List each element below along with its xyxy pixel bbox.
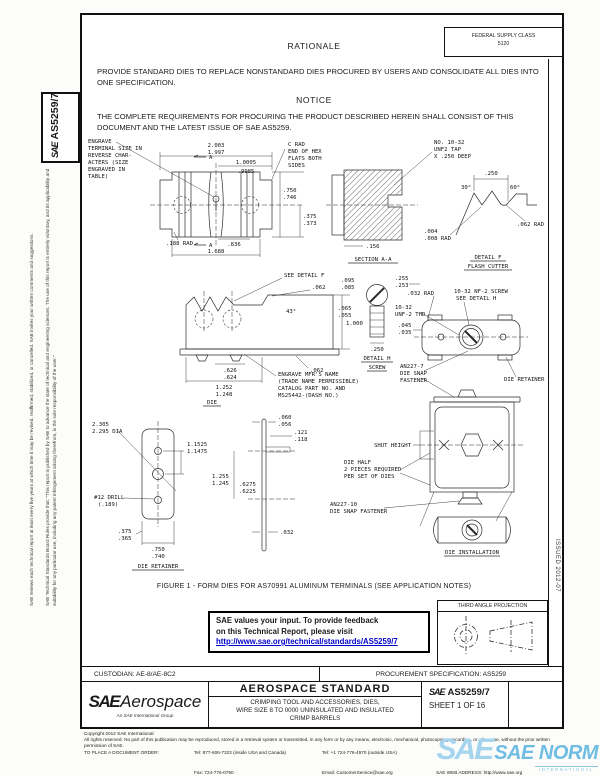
order-label: TO PLACE A DOCUMENT ORDER:	[84, 750, 159, 756]
view-die-front: 2.003 1.997 1.0005 .9985 A A C RAD END O…	[88, 139, 322, 257]
margin-legal-text: SAE Technical Standards Board Rules prov…	[45, 164, 59, 606]
figure-1-drawing: 2.003 1.997 1.0005 .9985 A A C RAD END O…	[82, 135, 546, 583]
dwg-label: SIDES	[288, 163, 305, 169]
view-title: DETAIL H	[364, 356, 391, 362]
dwg-label: 1.0005	[236, 160, 256, 166]
dwg-label: CATALOG PART NO. AND	[278, 386, 346, 392]
dwg-label: 2.295 DIA	[92, 429, 123, 435]
dwg-label: 1.1525	[187, 442, 207, 448]
dwg-label: .035	[398, 330, 411, 336]
revision-cell	[508, 682, 562, 727]
standard-sheet: FEDERAL SUPPLY CLASS 5120 ISSUED 2012-07…	[80, 13, 564, 729]
dwg-label: 2.003	[208, 143, 225, 149]
dwg-label: ENGRAVE MFR'S NAME	[278, 372, 339, 378]
aerospace-wordmark: Aerospace	[120, 692, 201, 711]
projection-title: THIRD ANGLE PROJECTION	[438, 601, 547, 612]
brand-cell: SAEAerospace An SAE International Group	[82, 682, 208, 727]
document-number: AS5259/7	[448, 687, 490, 698]
dwg-label: ACTERS (SIZE	[88, 160, 129, 166]
feedback-box: SAE values your input. To provide feedba…	[208, 611, 430, 653]
dwg-label: .375	[303, 214, 316, 220]
dwg-label: .250	[484, 171, 497, 177]
dwg-label: 10-32	[395, 305, 412, 311]
brand-tagline: An SAE International Group	[117, 713, 174, 718]
dwg-label: 30°	[461, 185, 471, 191]
document-title-line: CRIMP BARRELS	[209, 715, 421, 723]
dwg-label: DIE HALF	[344, 460, 372, 466]
dwg-label: .065	[338, 306, 351, 312]
order-tel2: Tel: +1 724-776-4970 (outside USA)	[322, 750, 397, 756]
doc-number-box: SAE AS5259/7	[41, 92, 80, 163]
dwg-label: .062 RAD	[517, 222, 545, 228]
dwg-label: 1.1475	[187, 449, 207, 455]
view-die-top: .255 .253 .032 RAD 10-32 UNF-2 THD .045 …	[395, 276, 545, 397]
dwg-label: .008 RAD	[424, 236, 452, 242]
dwg-label: .095	[341, 278, 354, 284]
dwg-label: .6225	[239, 489, 256, 495]
dwg-label: TERMINAL SIZE IN	[88, 146, 142, 152]
dwg-label: DIE SNAP	[400, 371, 428, 377]
dwg-label: .6275	[239, 482, 256, 488]
view-title: DIE INSTALLATION	[445, 550, 499, 556]
sae-aerospace-logo: SAEAerospace	[89, 692, 202, 712]
dwg-label: .055	[338, 313, 351, 319]
dwg-label: .746	[283, 195, 296, 201]
dwg-label: #12 DRILL	[94, 495, 125, 501]
dwg-label: .032 RAD	[407, 291, 435, 297]
margin-divider	[548, 59, 549, 667]
view-die-installation: SHUT HEIGHT DIE HALF 2 PIECES REQUIRED P…	[330, 390, 524, 556]
dwg-label: X .250 DEEP	[434, 154, 472, 160]
dwg-label: .255	[395, 276, 408, 282]
title-block: SAEAerospace An SAE International Group …	[82, 681, 562, 727]
dwg-label: SHUT HEIGHT	[374, 443, 412, 449]
dwg-label: .9985	[238, 169, 255, 175]
dwg-label: 1.000	[346, 321, 363, 327]
dwg-label: DIE RETAINER	[504, 377, 545, 383]
doc-number: AS5259/7	[49, 93, 61, 140]
dwg-label: 1.252	[216, 385, 233, 391]
rationale-body: PROVIDE STANDARD DIES TO REPLACE NONSTAN…	[97, 66, 547, 88]
document-title: CRIMPING TOOL AND ACCESSORIES, DIES, WIR…	[209, 697, 421, 727]
document-title-line: WIRE SIZE 8 TO 0000 UNINSULATED AND INSU…	[209, 707, 421, 715]
third-angle-projection-symbol	[438, 612, 547, 660]
procurement-label: PROCUREMENT SPECIFICATION: AS5259	[319, 667, 562, 681]
dwg-label: AN227-7	[400, 364, 424, 370]
dwg-label: 10-32 NF-2 SCREW	[454, 289, 509, 295]
dwg-label: .045	[398, 323, 411, 329]
dwg-label: 1.248	[216, 392, 233, 398]
dwg-label: 2 PIECES REQUIRED	[344, 467, 402, 473]
sheet-number: SHEET 1 OF 16	[429, 701, 508, 710]
sae-logo: SAE	[89, 692, 119, 711]
dwg-label: 43°	[286, 309, 296, 315]
view-title: DETAIL F	[475, 255, 503, 261]
dwg-label: .750	[151, 547, 164, 553]
dwg-label: 1.245	[212, 481, 229, 487]
dwg-label: ENGRAVE	[88, 139, 112, 145]
dwg-label: .121	[294, 430, 307, 436]
view-title: DIE RETAINER	[138, 564, 179, 570]
dwg-label: NO. 10-32	[434, 140, 464, 146]
dwg-label: 1.688	[208, 249, 225, 255]
dwg-label: ENGRAVED IN	[88, 167, 125, 173]
dwg-label: .253	[395, 283, 408, 289]
notice-title: NOTICE	[82, 95, 546, 105]
dwg-label: C RAD	[288, 142, 305, 148]
sae-logo: SAE	[50, 142, 60, 158]
fsc-label: FEDERAL SUPPLY CLASS	[445, 32, 562, 40]
order-fax: Fax: 724-776-0790	[194, 770, 234, 776]
view-section-aa: .156 NO. 10-32 UNF2 TAP X .250 DEEP SECT…	[326, 140, 472, 263]
margin-review-text: SAE reviews each technical report at lea…	[29, 164, 36, 606]
dwg-label: .626	[223, 368, 236, 374]
dwg-label: REVERSE CHAR-	[88, 153, 132, 159]
view-title: SCREW	[369, 365, 386, 371]
dwg-label: .004	[424, 229, 438, 235]
dwg-label: .365	[118, 536, 131, 542]
dwg-label: (.189)	[98, 502, 118, 508]
dwg-label: 60°	[510, 185, 520, 191]
dwg-label: .750	[283, 188, 296, 194]
dwg-label: DIE SNAP FASTENER	[330, 509, 388, 515]
figure-caption: FIGURE 1 - FORM DIES FOR AS70991 ALUMINU…	[82, 583, 546, 590]
watermark-subtext: INTERNATIONAL	[535, 766, 598, 772]
dwg-label: SEE DETAIL F	[284, 273, 325, 279]
dwg-label: 2.305	[92, 422, 109, 428]
view-retainer-section: .060 .056 .121 .118 1.255 1.245 .6275 .6…	[212, 415, 308, 551]
dwg-label: .250	[370, 347, 383, 353]
dwg-label: AN227-10	[330, 502, 357, 508]
order-email: Email: CustomerService@sae.org	[322, 770, 393, 776]
dwg-label: .375	[118, 529, 131, 535]
custodian-label: CUSTODIAN: AE-8/AE-8C2	[82, 671, 319, 678]
dwg-label: .373	[303, 221, 316, 227]
view-die-half: SEE DETAIL F .062 43° 1.000 .062 .626 .6…	[180, 273, 363, 406]
dwg-label: .060	[278, 415, 291, 421]
document-title-line: CRIMPING TOOL AND ACCESSORIES, DIES,	[209, 699, 421, 707]
custodian-row: CUSTODIAN: AE-8/AE-8C2 PROCUREMENT SPECI…	[82, 666, 562, 681]
view-title: SECTION A-A	[354, 257, 392, 263]
dwg-label: .624	[223, 375, 237, 381]
dwg-label: PER SET OF DIES	[344, 474, 395, 480]
dwg-label: .056	[278, 422, 291, 428]
order-tel1: Tel: 877-606-7323 (inside USA and Canada…	[194, 750, 286, 756]
dwg-label: SEE DETAIL H	[456, 296, 496, 302]
watermark-norm-text: SAE NORM	[494, 742, 598, 765]
sae-logo: SAE	[429, 687, 445, 697]
dwg-label: MS25442-(DASH NO.)	[278, 393, 339, 399]
feedback-line2: on this Technical Report, please visit	[216, 627, 422, 638]
view-title: FLASH CUTTER	[468, 264, 509, 270]
document-number-cell: SAE AS5259/7 SHEET 1 OF 16	[422, 682, 508, 727]
document-title-cell: AEROSPACE STANDARD CRIMPING TOOL AND ACC…	[208, 682, 422, 727]
dwg-label: 1.255	[212, 474, 229, 480]
document-type: AEROSPACE STANDARD	[209, 682, 421, 697]
dwg-label: .085	[341, 285, 354, 291]
dwg-label: (TRADE NAME PERMISSIBLE)	[278, 379, 359, 385]
issued-date: ISSUED 2012-07	[554, 539, 560, 631]
projection-box: THIRD ANGLE PROJECTION	[437, 600, 548, 665]
rationale-title: RATIONALE	[82, 41, 546, 51]
dwg-label: UNF2 TAP	[434, 147, 462, 153]
dwg-label: .062	[312, 285, 325, 291]
dwg-label: .836	[227, 242, 240, 248]
feedback-line1: SAE values your input. To provide feedba…	[216, 616, 422, 627]
view-detail-f: .250 30° 60° .062 RAD .004 .008 RAD DETA…	[424, 171, 545, 270]
feedback-link[interactable]: http://www.sae.org/technical/standards/A…	[216, 637, 398, 646]
dwg-label: .118	[294, 437, 308, 443]
sae-norm-watermark: SAE SAE NORM INTERNATIONAL	[437, 737, 598, 772]
dwg-label: .188 RAD	[166, 241, 194, 247]
dwg-label: .156	[366, 244, 379, 250]
watermark-sae-glyph: SAE	[437, 737, 493, 763]
dwg-label: .740	[151, 554, 164, 560]
view-title: DIE	[207, 400, 218, 406]
dwg-label: END OF HEX	[288, 149, 322, 155]
dwg-label: .032	[280, 530, 293, 536]
notice-body: THE COMPLETE REQUIREMENTS FOR PROCURING …	[97, 111, 547, 133]
view-die-retainer: 2.305 2.295 DIA 1.1525 1.1475 #12 DRILL …	[92, 421, 207, 570]
dwg-label: TABLE)	[88, 174, 108, 180]
dwg-label: FLATS BOTH	[288, 156, 322, 162]
